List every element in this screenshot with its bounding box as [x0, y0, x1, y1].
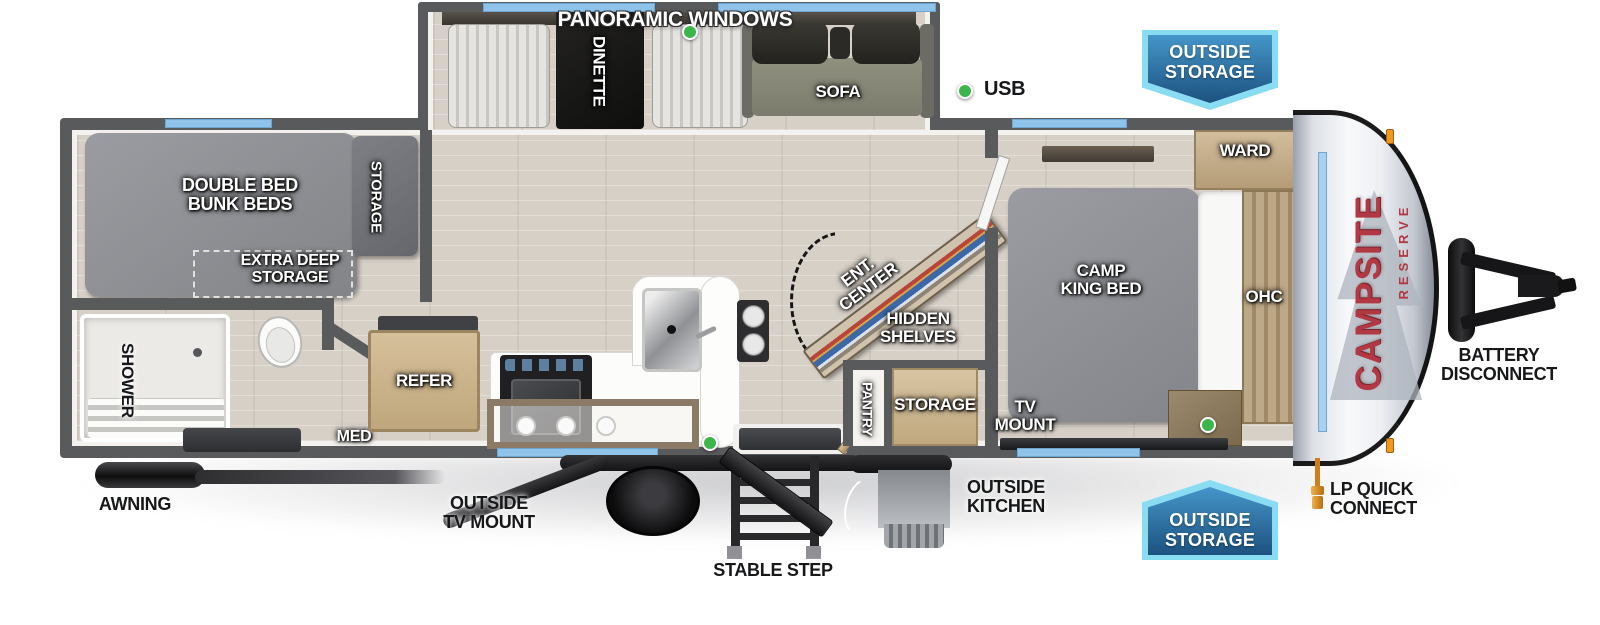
pantry-label: PANTRY [860, 372, 875, 446]
outside-tv-mount-label: OUTSIDE TV MOUNT [424, 494, 554, 532]
tv-mount-base [606, 466, 700, 536]
usb-dot-legend [957, 83, 973, 99]
front-cap-side-window [1318, 152, 1327, 432]
ohc-label: OHC [1228, 288, 1300, 306]
floorplan-canvas: STORAGE DOUBLE BED BUNK BEDS EXTRA DEEP … [0, 0, 1600, 625]
wardrobe [1194, 130, 1296, 190]
sofa-back-right [852, 22, 920, 64]
sofa-arm-right [920, 24, 934, 118]
usb-dot-panoramic [682, 24, 698, 40]
refer-label: REFER [368, 372, 480, 390]
camp-king-bed [1008, 188, 1200, 422]
brand-logo: CAMPSITE [1349, 173, 1391, 413]
stable-step-label: STABLE STEP [698, 561, 848, 580]
tv-mount-label: TV MOUNT [980, 398, 1070, 433]
bedroom-valance [1042, 146, 1154, 162]
hidden-shelves-label: HIDDEN SHELVES [870, 310, 966, 345]
wall-bunkroom-right [420, 130, 432, 302]
canister-2 [556, 416, 576, 436]
entry-storage-label: STORAGE [886, 396, 984, 414]
wall-bath-top [72, 298, 334, 310]
step-foot-left [727, 546, 742, 559]
burner-top [742, 305, 765, 328]
overhead-cabinet [1242, 190, 1296, 424]
entry-step-well [739, 428, 841, 450]
sofa-label: SOFA [788, 83, 888, 101]
shower-drain [193, 348, 202, 357]
wall-bedroom-upper [985, 130, 998, 158]
awning-label: AWNING [92, 495, 178, 514]
wall-pantry-left [843, 360, 853, 446]
sofa-back-center [830, 27, 850, 59]
usb-label: USB [984, 79, 1044, 100]
battery-disconnect-label: BATTERY DISCONNECT [1436, 346, 1562, 384]
window-bedroom-top [1012, 119, 1127, 128]
usb-dot-kitchen [702, 435, 718, 451]
marker-light-top [1386, 129, 1394, 144]
outside-storage-badge-top: OUTSIDE STORAGE [1142, 30, 1278, 110]
bunk-foot-storage [352, 136, 418, 256]
lp-pipe [1315, 458, 1320, 488]
hitch-coupler-tip [1557, 278, 1577, 294]
sink-drain [667, 325, 676, 334]
bath-sink-counter [183, 428, 301, 452]
outside-kitchen-label: OUTSIDE KITCHEN [950, 478, 1062, 516]
step-foot-right [806, 546, 821, 559]
window-bedroom-bottom [1017, 448, 1140, 457]
dinette-bench-right [652, 24, 748, 128]
brand-series: RESERVE [1396, 181, 1412, 321]
lp-quick-connect-label: LP QUICK CONNECT [1330, 480, 1442, 518]
kitchen-island-column [700, 276, 740, 448]
lp-connector-lower [1312, 496, 1323, 509]
usb-dot-bedroom [1200, 417, 1216, 433]
outside-storage-badge-top-label: OUTSIDE STORAGE [1142, 42, 1278, 82]
outside-kitchen-body [878, 470, 950, 528]
shower-label: SHOWER [118, 328, 136, 432]
bunk-storage-label: STORAGE [368, 148, 384, 246]
awning-rail-shadow [195, 470, 445, 484]
outside-storage-badge-bottom-label: OUTSIDE STORAGE [1142, 510, 1278, 550]
camp-king-bed-label: CAMP KING BED [1038, 262, 1164, 297]
outside-kitchen-griddle [884, 524, 944, 548]
canister-3 [596, 416, 616, 436]
marker-light-bottom [1386, 438, 1394, 453]
dinette-label: DINETTE [590, 28, 608, 114]
dinette-bench-left [448, 24, 550, 128]
extra-deep-storage-label: EXTRA DEEP STORAGE [205, 253, 375, 286]
window-rear-top [165, 119, 272, 128]
panoramic-windows-label: PANORAMIC WINDOWS [538, 8, 812, 32]
stove-burners [505, 359, 587, 371]
ward-label: WARD [1198, 142, 1292, 160]
burner-bottom [742, 333, 765, 356]
lp-connector-upper [1311, 486, 1324, 495]
awning-tube [95, 462, 205, 488]
canister-1 [516, 416, 536, 436]
bunk-bed-label: DOUBLE BED BUNK BEDS [140, 176, 340, 213]
